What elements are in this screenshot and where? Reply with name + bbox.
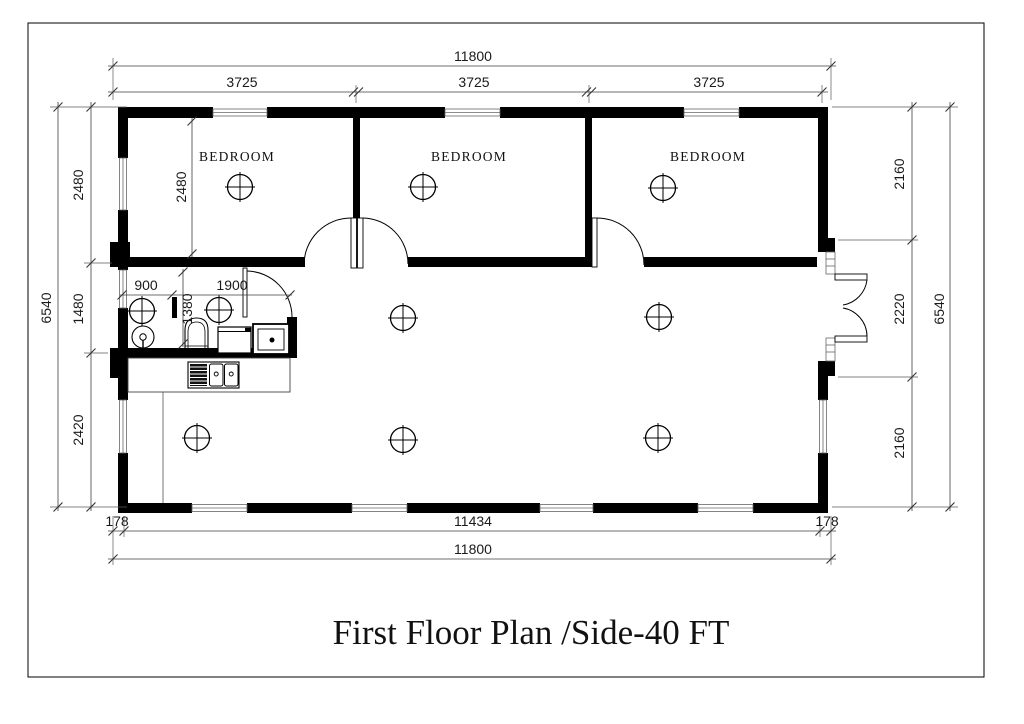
dimension-right-overall: 6540 [931,102,955,512]
dim-label: 11434 [454,513,492,529]
bedroom2-door [358,218,409,268]
ceiling-light-icon [127,172,678,455]
entry-double-door [817,252,867,361]
bathroom-door [243,268,292,317]
dim-label: 3725 [226,74,257,90]
window [118,158,128,210]
room-label-bedroom2: BEDROOM [431,149,507,164]
door-leaf [835,274,867,280]
window [684,107,739,118]
window [352,503,407,513]
room-label-bedroom3: BEDROOM [670,149,746,164]
dimension-bathroom-widths: 900 1900 [118,277,295,300]
window [118,400,128,453]
dimension-bedroom1-depth: 2480 [173,117,197,259]
dim-label: 2420 [70,414,86,445]
dim-label: 1480 [70,293,86,324]
room-label-bedroom1: BEDROOM [199,149,275,164]
dim-label: 3725 [693,74,724,90]
door-swing-arc [843,308,867,336]
window [540,503,593,513]
dim-label: 11800 [454,48,492,64]
door-swing-arc [843,280,867,305]
window [698,503,753,513]
dimension-top-segments: 3725 3725 3725 [108,74,828,103]
washing-machine-icon [218,327,251,353]
floor-plan-drawing: 11800 3725 3725 3725 178 11434 178 11800 [0,0,1024,724]
dimension-bathroom-depth: 1380 [179,268,196,349]
dim-label: 11800 [454,541,492,557]
dim-label: 178 [105,513,129,529]
page-title: First Floor Plan /Side-40 FT [333,613,730,652]
dimension-left-overall: 6540 [38,102,63,512]
floor-plan-page: 11800 3725 3725 3725 178 11434 178 11800 [0,0,1024,724]
dimension-left-segments: 2480 1480 2420 [50,102,127,512]
dim-label: 900 [134,277,158,293]
window [192,503,247,513]
dimension-bottom-overall: 11800 [108,541,836,564]
bedroom3-door [592,218,644,267]
vanity-sink-icon [253,324,289,354]
dim-label: 6540 [931,293,947,324]
dim-label: 3725 [458,74,489,90]
window [118,270,128,308]
door-leaf [835,336,867,342]
door-frame [826,338,835,361]
window [445,107,500,118]
dim-label: 2160 [891,158,907,189]
kitchen-sink [188,362,239,388]
dim-label: 2220 [891,293,907,324]
dim-label: 2160 [891,427,907,458]
dim-label: 6540 [38,292,54,323]
dimension-bottom-segments: 178 11434 178 [105,513,839,565]
window [818,400,828,453]
dim-label: 1900 [216,277,247,293]
dim-label: 178 [815,513,839,529]
dim-label: 1380 [179,293,195,324]
dim-label: 2480 [173,171,189,202]
bedroom1-door [304,218,357,268]
window [213,107,267,118]
dim-label: 2480 [70,169,86,200]
door-frame [826,252,835,274]
